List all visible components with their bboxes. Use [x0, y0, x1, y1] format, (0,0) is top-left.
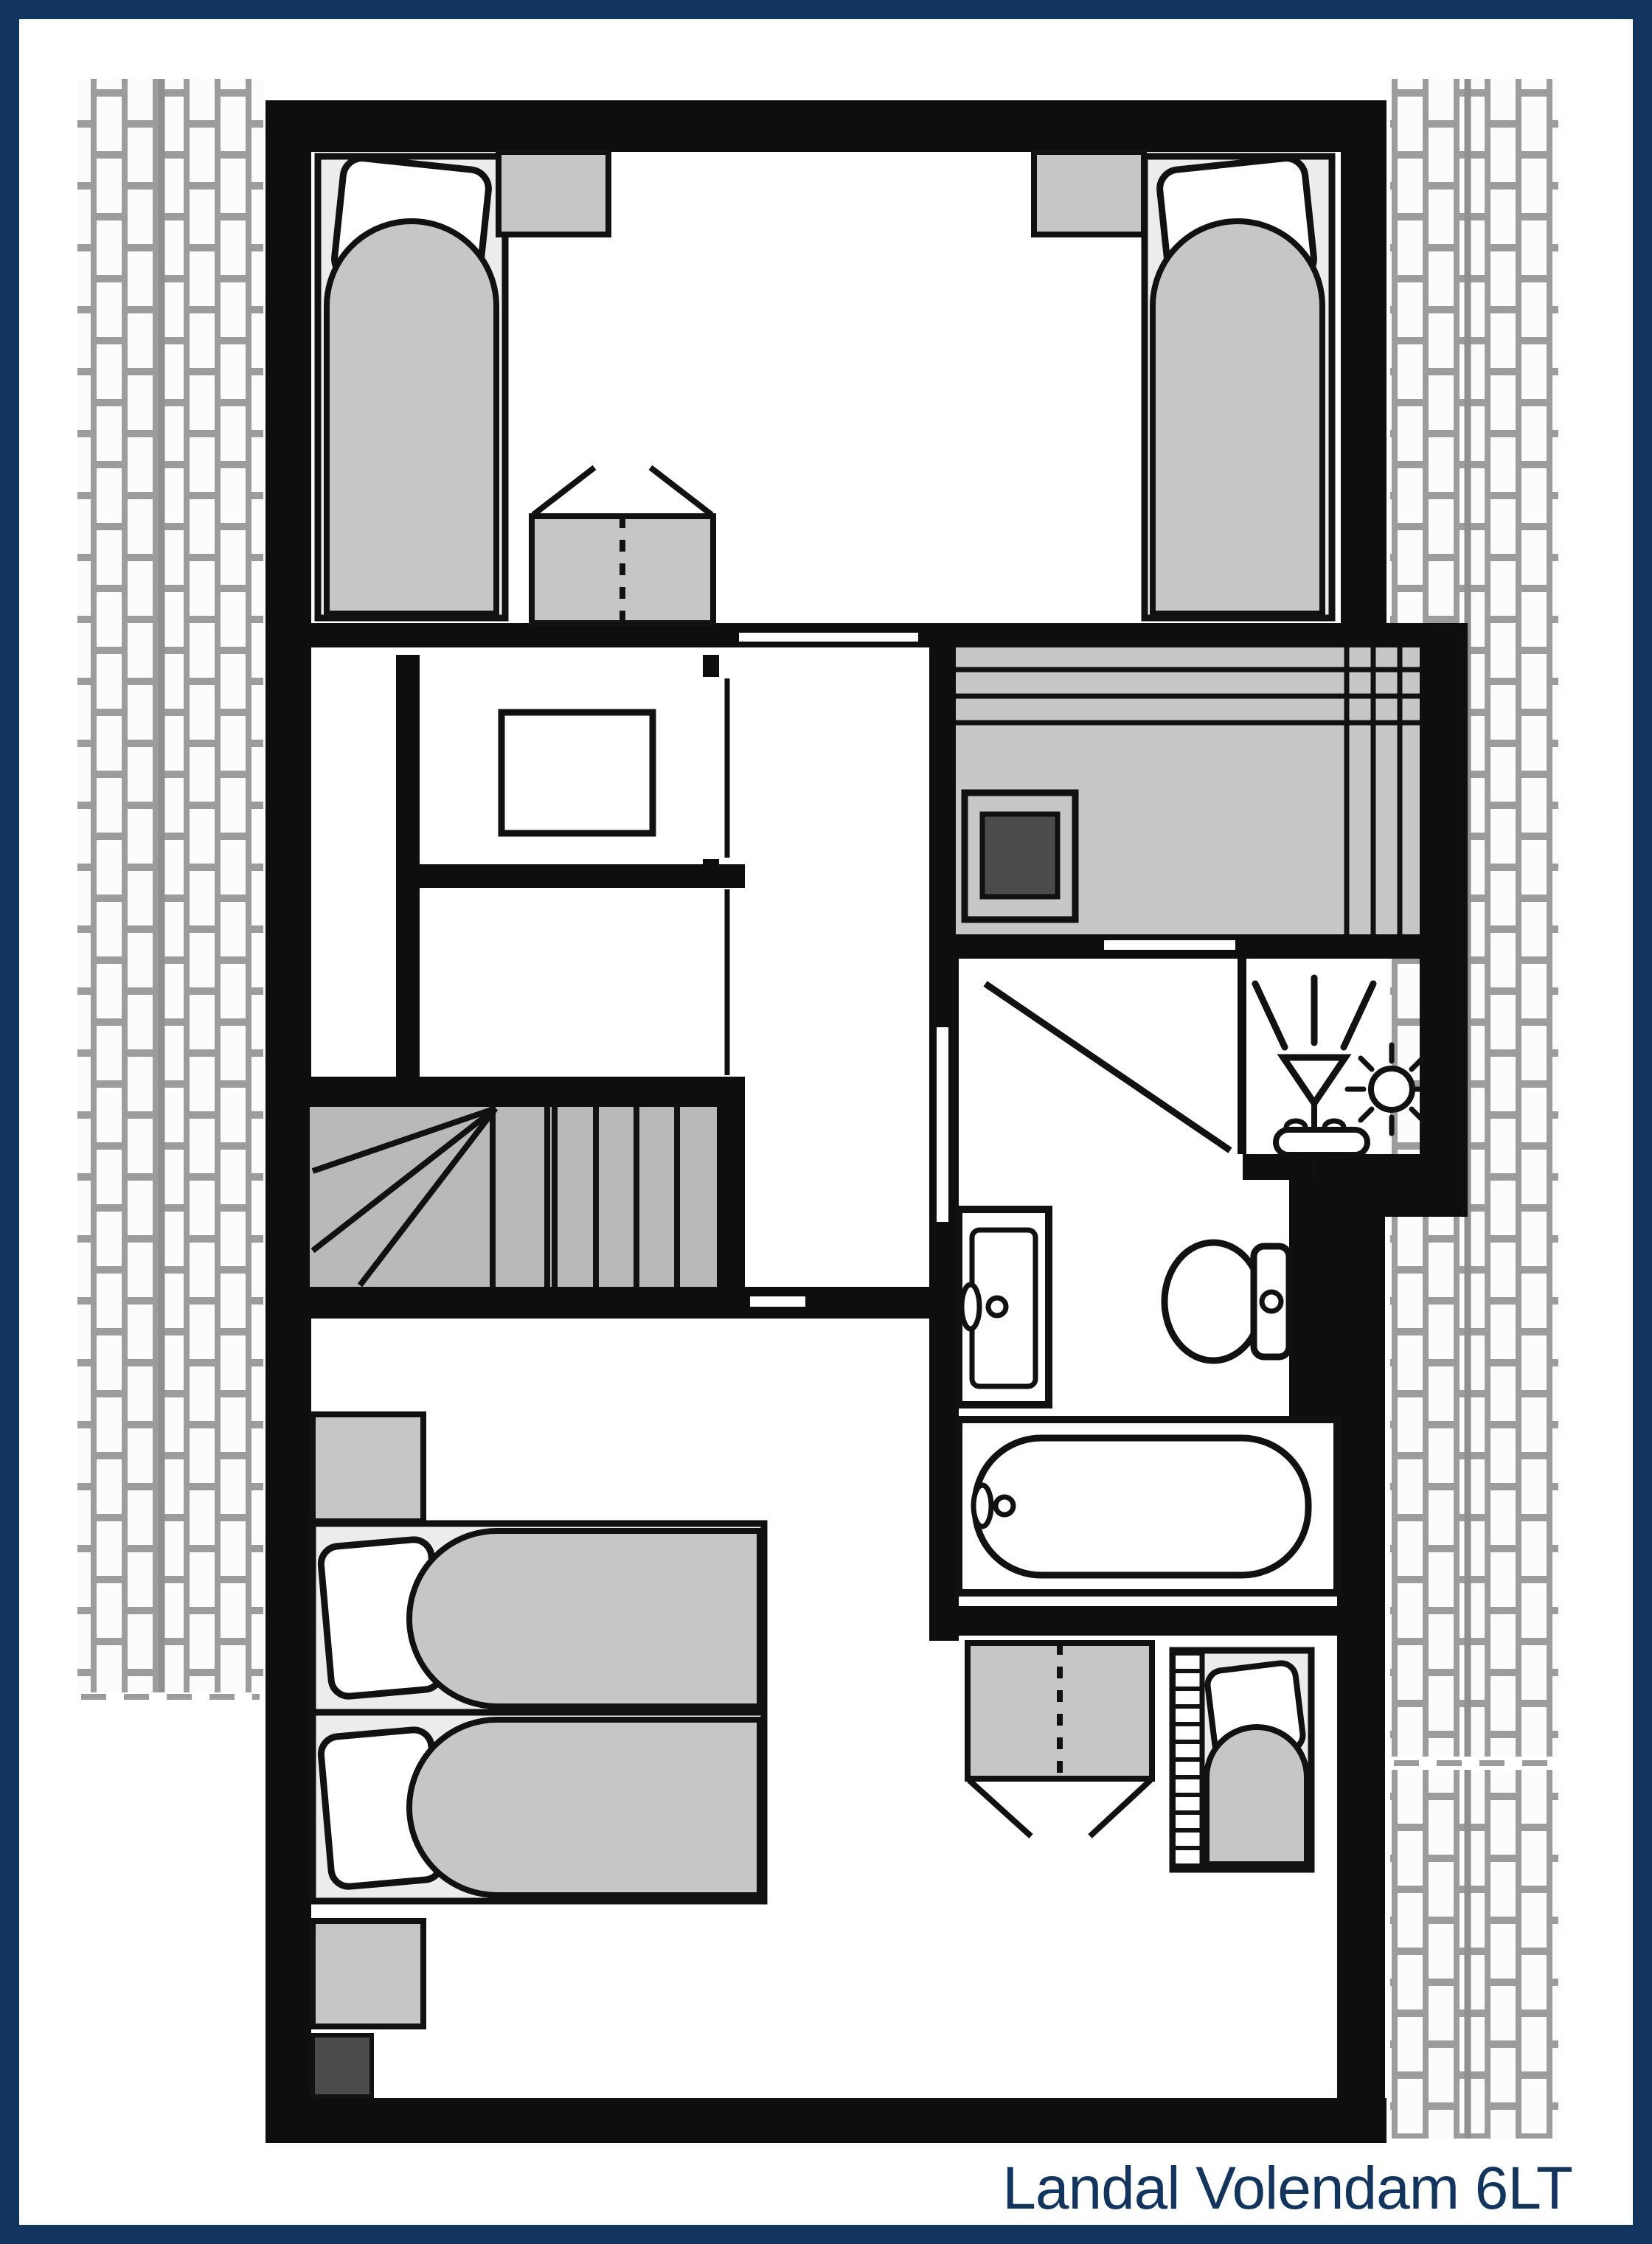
floorplan-drawing: Landal Volendam 6LT: [0, 0, 1652, 2244]
toilet: [1165, 1243, 1289, 1361]
wall-block-upper: [1289, 1180, 1468, 1217]
wall-bathroom-south: [959, 1606, 1337, 1636]
chimney-block: [313, 2035, 372, 2097]
door-bedroom1: [739, 633, 918, 642]
floorplan-page: Landal Volendam 6LT: [0, 0, 1652, 2244]
bathtub: [959, 1420, 1337, 1593]
nightstand: [313, 1921, 423, 2026]
wall-storeroom-east-b: [703, 859, 719, 888]
wall-between-storerooms: [396, 864, 745, 888]
wall-top: [265, 100, 1386, 152]
toilet-bowl: [1165, 1243, 1262, 1361]
roof-hatch-right: [1390, 79, 1558, 2139]
wall-shower-south: [1243, 1154, 1468, 1180]
duvet: [1207, 1727, 1307, 1864]
door-bedroom2: [750, 1296, 805, 1307]
plan-title: Landal Volendam 6LT: [1002, 2155, 1572, 2222]
wall-right-middle: [1420, 623, 1468, 1217]
shower-base: [1276, 1130, 1367, 1155]
toilet-button: [1262, 1292, 1281, 1311]
sauna-heater-stones: [982, 814, 1058, 897]
wall-bottom: [265, 2098, 1386, 2143]
nightstand: [499, 152, 608, 235]
sauna: [956, 647, 1420, 934]
wall-stairs-north: [310, 1077, 745, 1107]
nightstand: [313, 1414, 423, 1521]
wall-stairs-east: [717, 1107, 745, 1287]
wall-left: [265, 100, 311, 2143]
single-bed-with-radiator: [1173, 1650, 1311, 1869]
sink: [959, 1209, 1049, 1405]
wall-right-lower: [1337, 1416, 1385, 2098]
duvet: [327, 221, 496, 614]
appliance-box: [502, 712, 653, 833]
bathtub-basin: [975, 1438, 1308, 1575]
wall-storeroom-east-a: [703, 655, 719, 677]
duvet: [1153, 221, 1322, 614]
duvet: [409, 1720, 760, 1895]
sink-tap-icon: [988, 1298, 1006, 1316]
wall-column: [1289, 1217, 1385, 1416]
staircase: [310, 1107, 717, 1287]
sink-tap-icon: [962, 1285, 979, 1329]
door-sauna: [1104, 940, 1235, 950]
bathtub-tap-icon: [996, 1497, 1013, 1515]
wall-right-upper: [1341, 100, 1386, 647]
door-bathroom: [937, 1027, 948, 1222]
nightstand: [1034, 152, 1144, 235]
bathtub-tap-icon: [974, 1485, 991, 1526]
roof-hatch-left: [77, 79, 263, 1697]
wall-shower-west: [1238, 959, 1246, 1154]
duvet: [409, 1531, 760, 1706]
wall-stairs-south: [310, 1287, 931, 1319]
